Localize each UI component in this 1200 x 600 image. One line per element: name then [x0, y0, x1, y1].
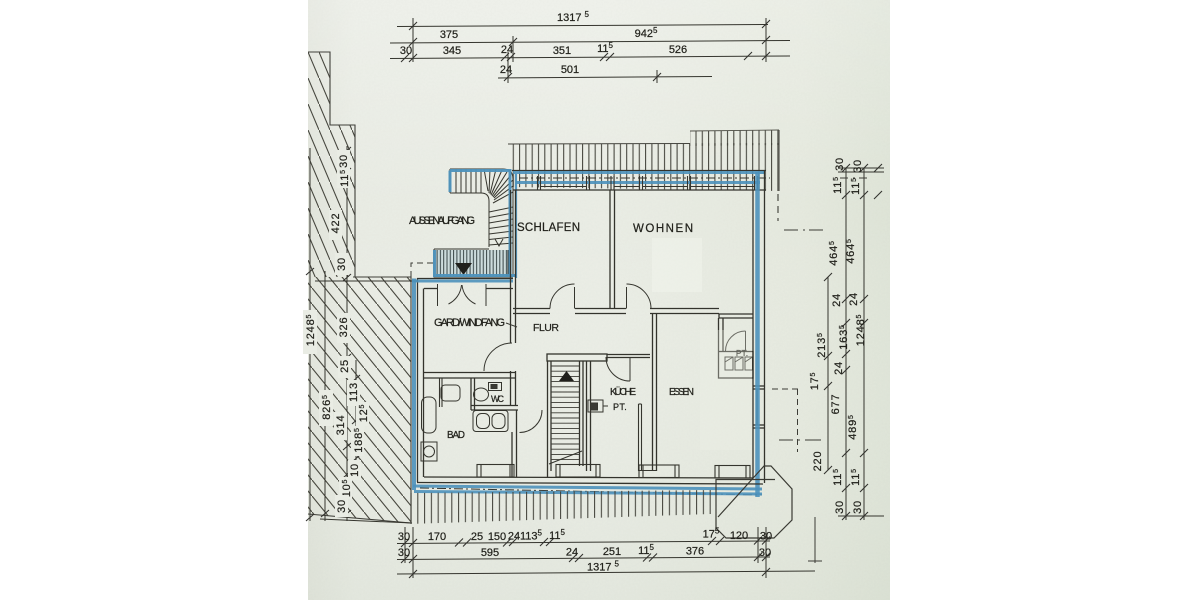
svg-text:FLUR: FLUR [533, 322, 559, 334]
svg-text:AUSSENAUFGANG: AUSSENAUFGANG [409, 215, 475, 227]
svg-text:25: 25 [471, 531, 483, 543]
svg-text:526: 526 [669, 44, 687, 56]
svg-text:30: 30 [398, 547, 410, 559]
svg-text:WOHNEN: WOHNEN [633, 223, 693, 235]
svg-text:314: 314 [335, 415, 347, 436]
svg-text:150: 150 [488, 531, 506, 543]
svg-text:113: 113 [348, 382, 360, 402]
svg-text:376: 376 [686, 546, 704, 558]
svg-text:30: 30 [759, 547, 771, 559]
svg-text:PT.: PT. [613, 402, 627, 412]
svg-text:25: 25 [339, 359, 351, 373]
svg-text:345: 345 [443, 45, 461, 57]
svg-text:251: 251 [603, 546, 621, 558]
svg-text:12485: 12485 [305, 314, 317, 346]
svg-text:30: 30 [400, 45, 412, 57]
svg-text:30: 30 [834, 500, 846, 514]
svg-text:220: 220 [812, 451, 824, 472]
svg-text:30: 30 [834, 157, 846, 171]
svg-text:595: 595 [481, 547, 499, 559]
svg-text:SCHLAFEN: SCHLAFEN [517, 222, 580, 234]
svg-text:24: 24 [831, 293, 843, 307]
svg-text:12485: 12485 [855, 314, 867, 346]
svg-text:30: 30 [338, 154, 350, 168]
svg-text:375: 375 [440, 29, 458, 41]
svg-text:24: 24 [501, 44, 513, 56]
svg-text:30: 30 [336, 257, 348, 271]
svg-text:GARD/WINDFANG: GARD/WINDFANG [434, 317, 505, 329]
svg-text:24: 24 [833, 361, 845, 375]
svg-text:WC: WC [491, 394, 505, 404]
svg-text:677: 677 [830, 394, 842, 415]
svg-text:24: 24 [508, 531, 520, 543]
svg-text:KÜCHE: KÜCHE [610, 387, 636, 398]
svg-text:BAD: BAD [447, 430, 465, 441]
svg-text:30: 30 [852, 159, 864, 173]
svg-text:170: 170 [428, 531, 446, 543]
svg-text:351: 351 [553, 45, 571, 57]
svg-text:30: 30 [336, 499, 348, 513]
svg-text:10: 10 [349, 463, 361, 477]
svg-text:30: 30 [852, 500, 864, 514]
svg-text:120: 120 [730, 530, 748, 542]
svg-text:24: 24 [848, 292, 860, 306]
svg-text:30: 30 [398, 531, 410, 543]
svg-text:24: 24 [566, 547, 578, 559]
svg-text:326: 326 [338, 317, 350, 338]
svg-text:30: 30 [760, 531, 772, 543]
svg-text:ESSEN: ESSEN [669, 387, 694, 398]
svg-text:24: 24 [500, 64, 512, 76]
svg-text:501: 501 [561, 64, 579, 76]
svg-text:422: 422 [330, 213, 342, 234]
